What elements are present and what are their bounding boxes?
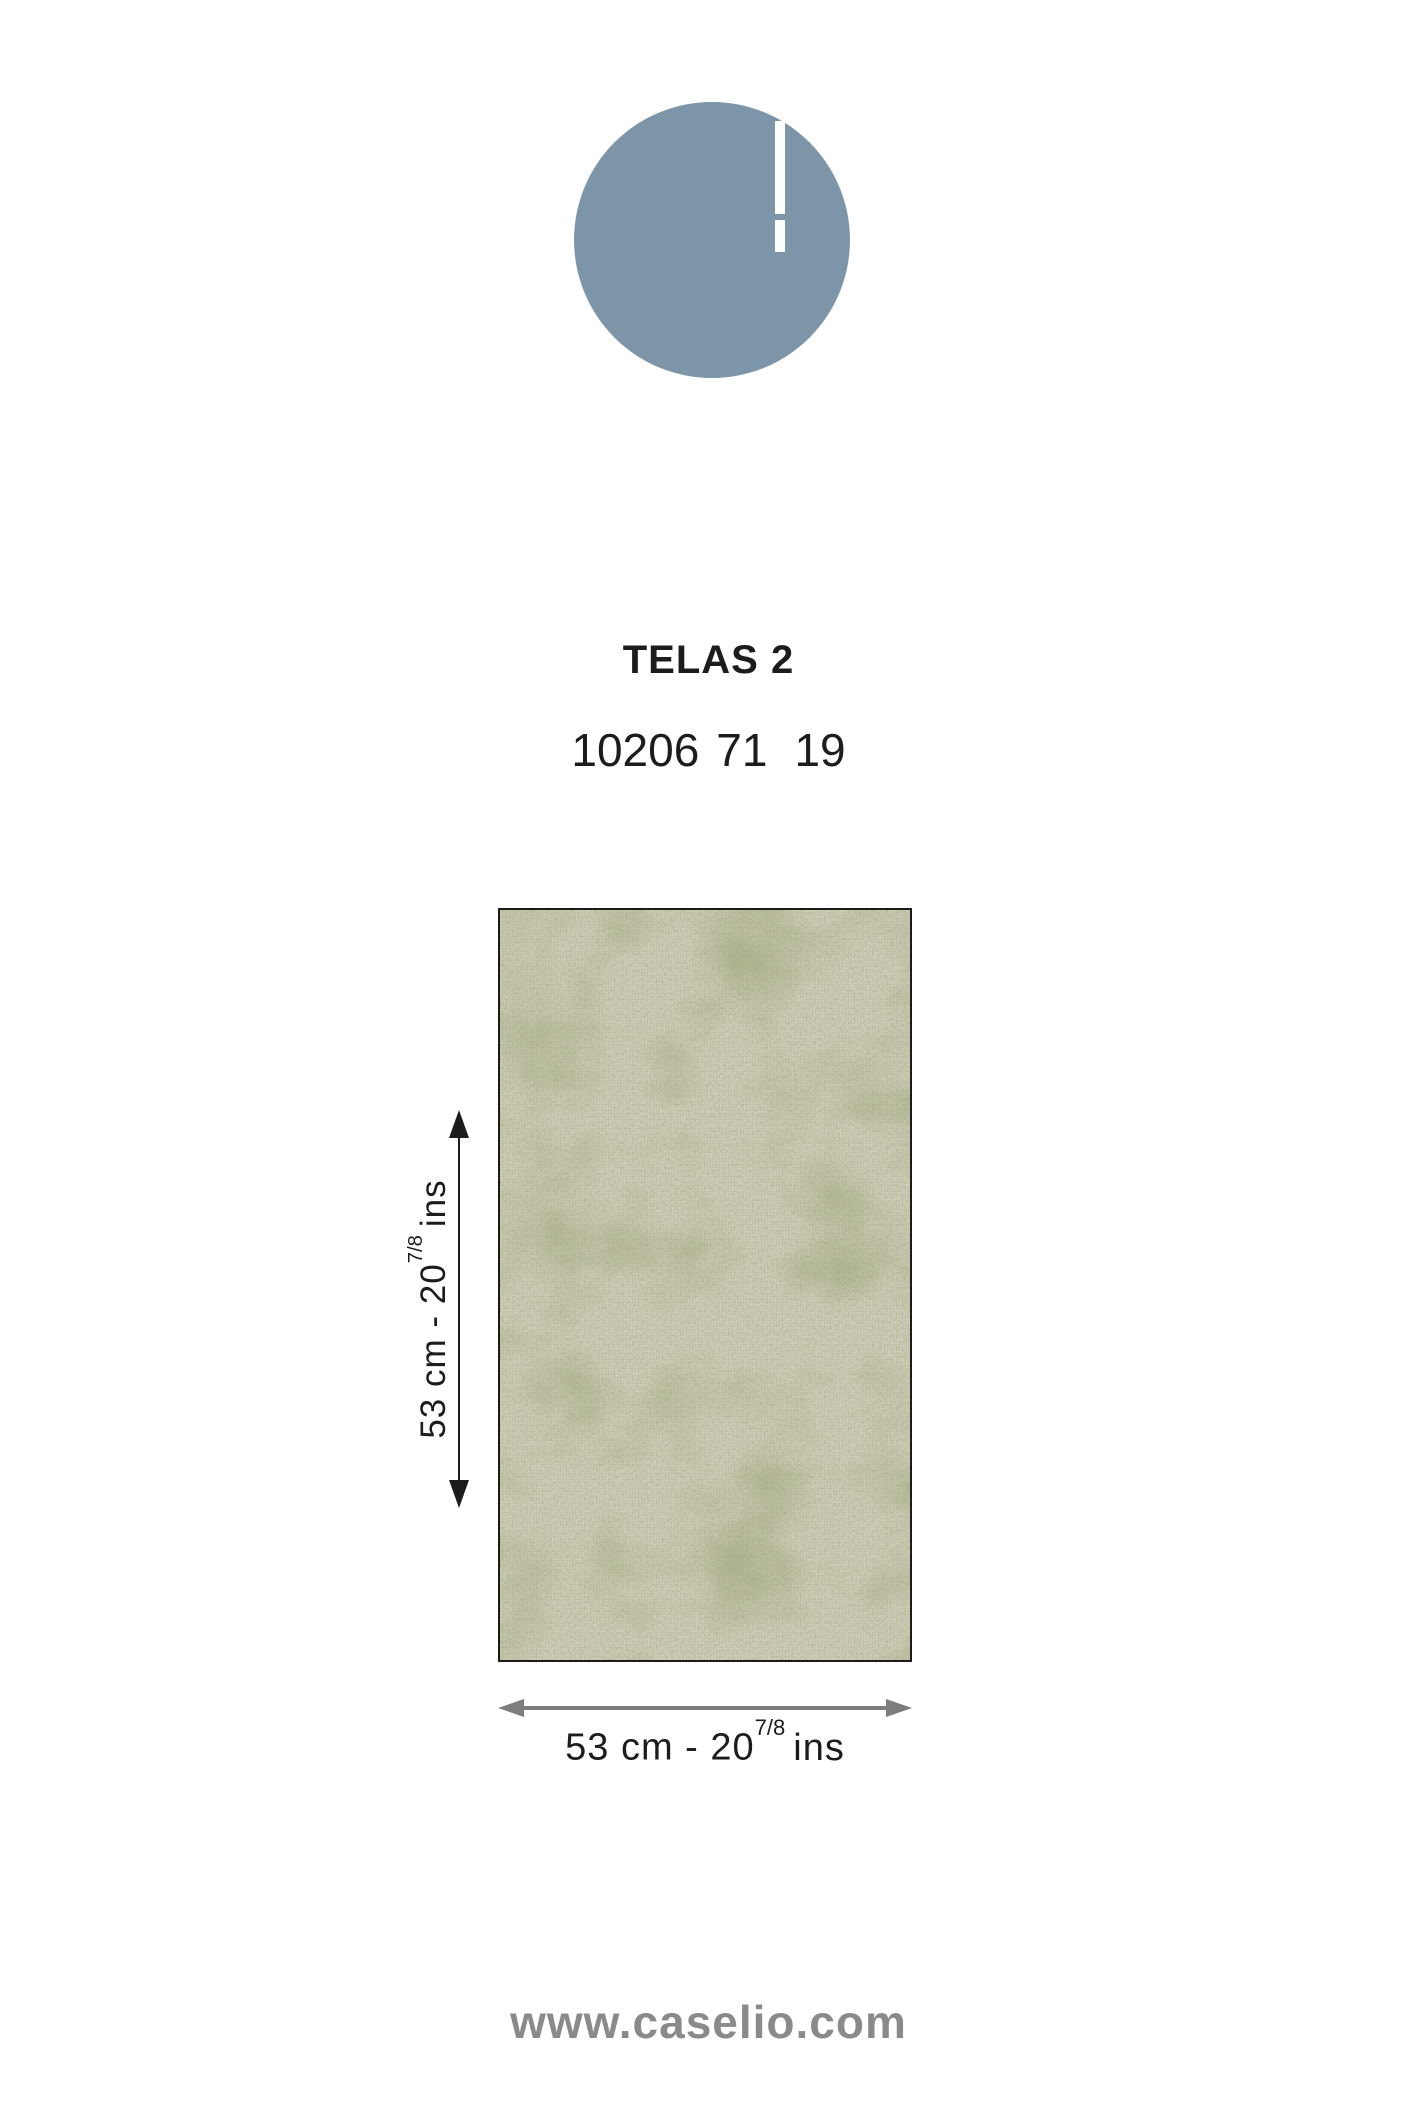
width-fraction: 7/8 [755, 1715, 786, 1740]
website-url: www.caselio.com [0, 1995, 1417, 2049]
arrow-down-icon [449, 1480, 469, 1508]
logo-accent-bar [775, 121, 785, 214]
wallpaper-swatch [498, 908, 912, 1662]
width-dimension-label: 53 cm - 207/8ins [498, 1726, 912, 1770]
arrow-line [458, 1138, 460, 1480]
arrow-line [524, 1706, 886, 1710]
width-value: 53 cm - 20 [565, 1727, 755, 1769]
arrow-left-icon [498, 1699, 524, 1717]
height-unit: ins [414, 1179, 453, 1227]
width-unit: ins [793, 1727, 845, 1769]
height-dimension-label: 53 cm - 207/8ins [414, 1179, 454, 1438]
product-name: TELAS 2 [0, 638, 1417, 682]
height-fraction: 7/8 [405, 1235, 427, 1263]
logo-wordmark: CASELO [1148, 308, 1417, 360]
product-spec-sheet: CASELO TELAS 2 10206 71 19 [0, 0, 1417, 2126]
logo-wordmark-right: O [1370, 308, 1412, 360]
reference-part: 19 [794, 726, 845, 775]
reference-part: 71 [716, 726, 767, 775]
swatch-weave-texture [500, 910, 910, 1660]
product-reference: 10206 71 19 [0, 726, 1417, 775]
arrow-up-icon [449, 1110, 469, 1138]
logo-wordmark-left: CASEL [1160, 308, 1346, 360]
height-value: 53 cm - 20 [414, 1263, 453, 1438]
caselio-logo: CASELO [574, 102, 850, 378]
logo-letter-i-stem [775, 220, 785, 252]
width-dimension-arrow [498, 1699, 912, 1717]
reference-part: 10206 [571, 726, 699, 775]
arrow-right-icon [886, 1699, 912, 1717]
